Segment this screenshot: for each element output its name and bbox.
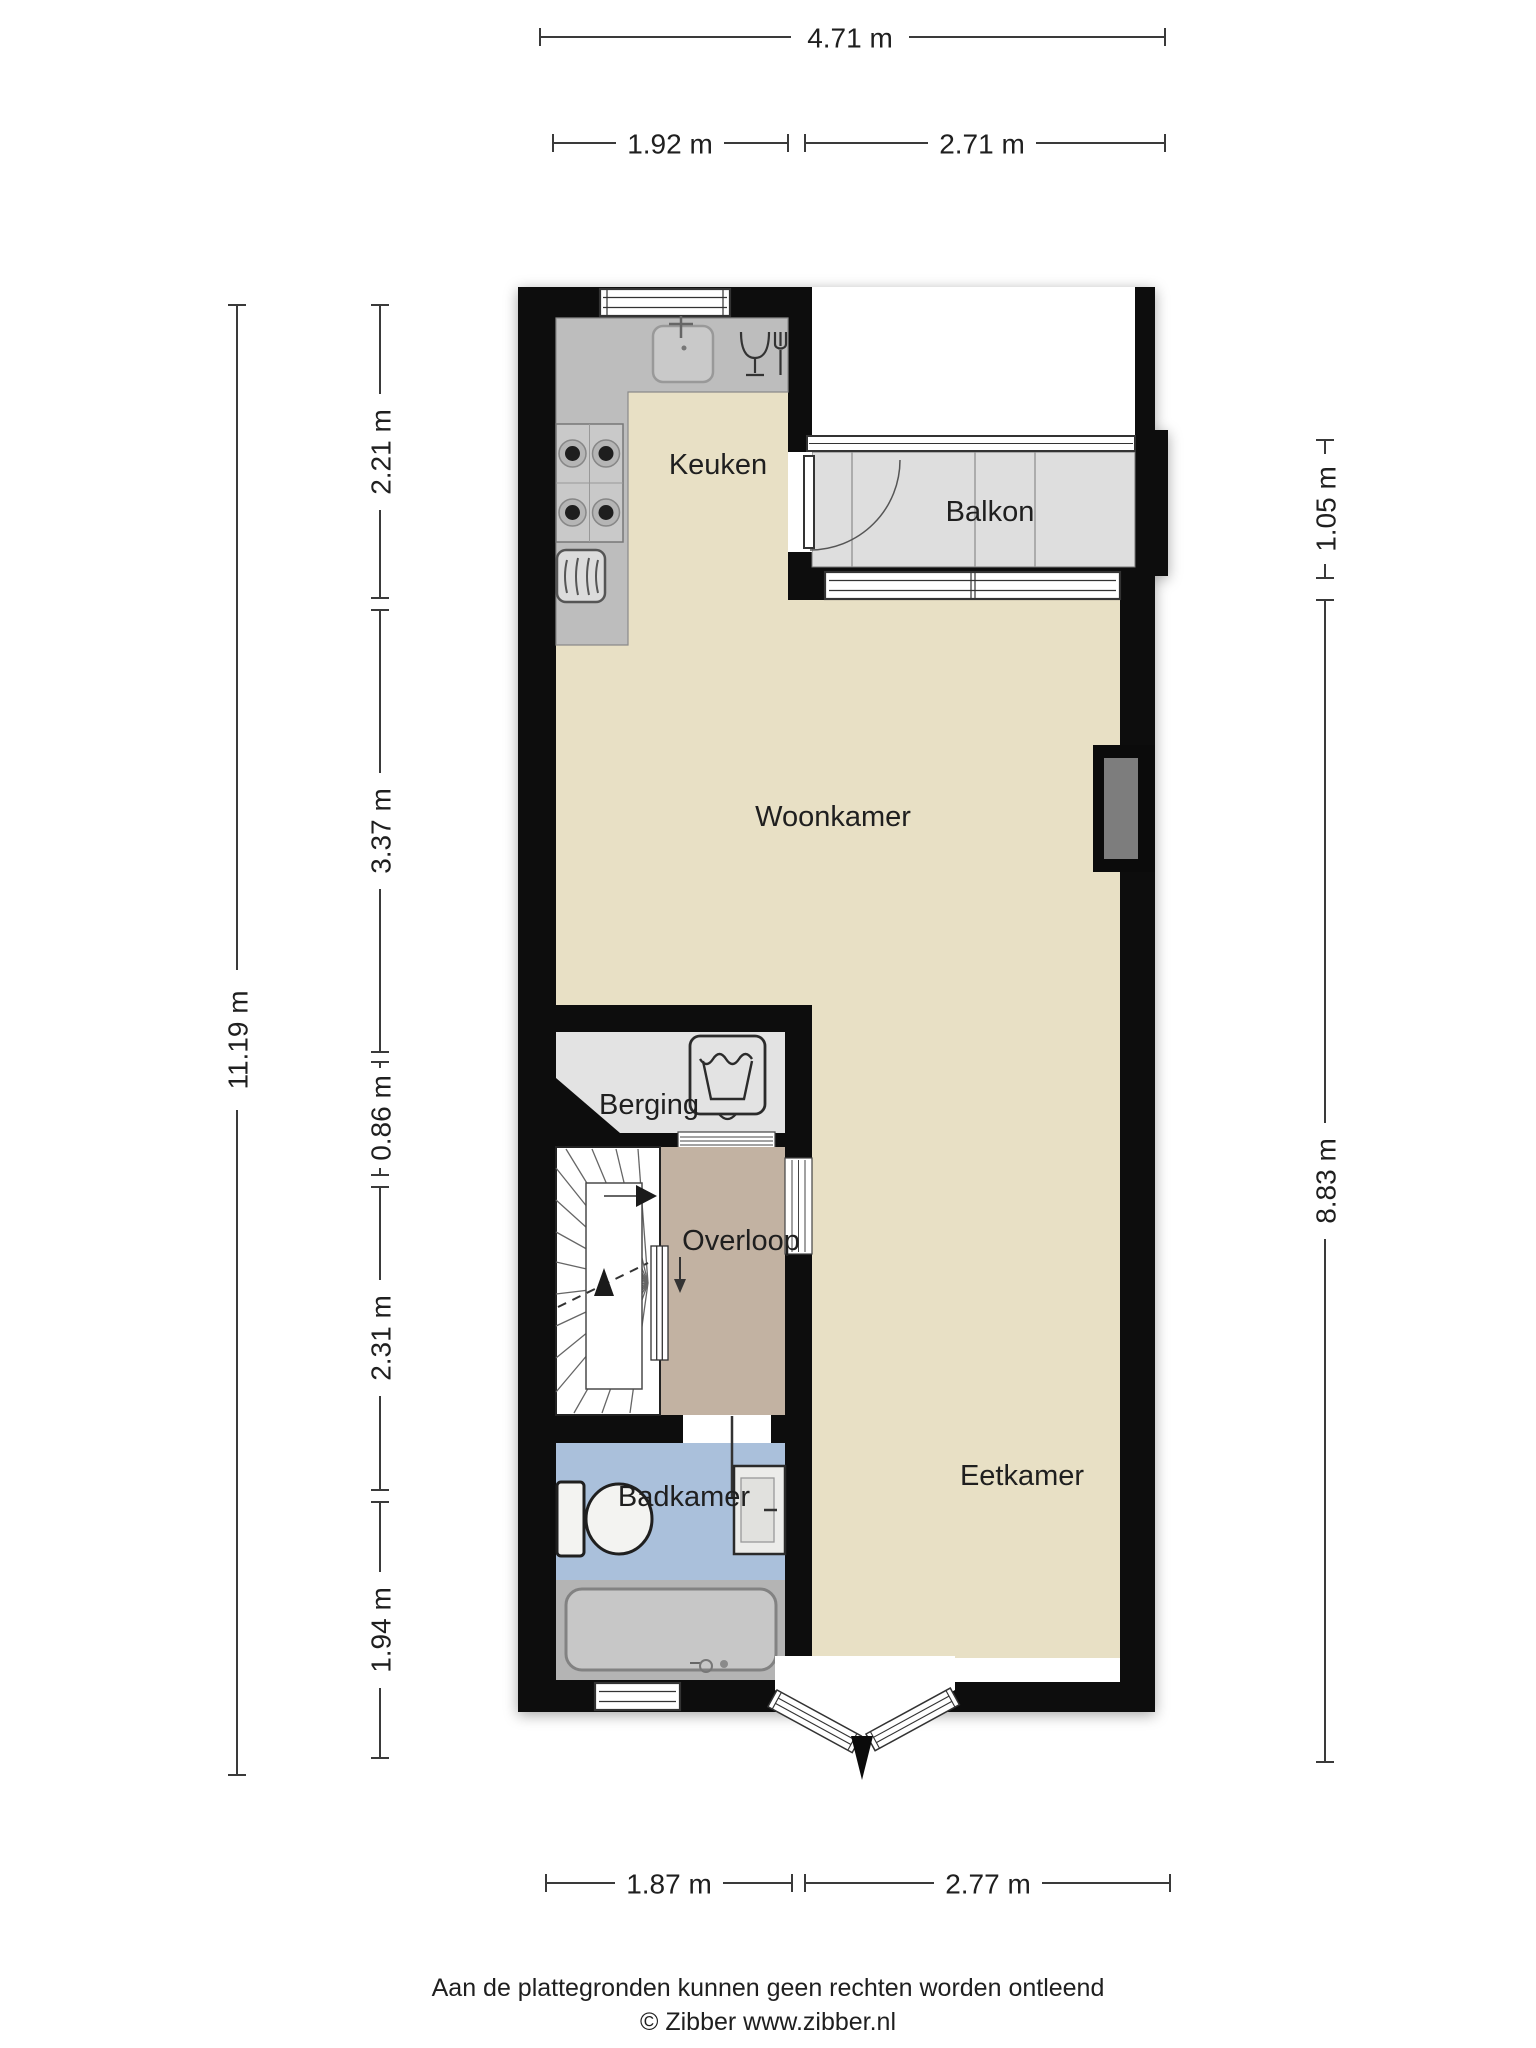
svg-text:1.92 m: 1.92 m bbox=[627, 129, 713, 160]
room-label-balkon: Balkon bbox=[946, 496, 1035, 528]
svg-text:1.05 m: 1.05 m bbox=[1311, 466, 1342, 552]
room-label-eetkamer: Eetkamer bbox=[960, 1460, 1084, 1492]
floor-plan: Keuken Balkon Woonkamer Berging Overloop… bbox=[0, 0, 1536, 2048]
bathroom-window bbox=[595, 1683, 680, 1710]
room-label-overloop: Overloop bbox=[682, 1225, 800, 1257]
footer-credit: © Zibber www.zibber.nl bbox=[640, 2008, 896, 2036]
svg-text:8.83 m: 8.83 m bbox=[1311, 1138, 1342, 1224]
staircase bbox=[556, 1147, 668, 1415]
stair-stringer bbox=[586, 1183, 642, 1389]
dimension-top-left: 1.92 m bbox=[553, 127, 788, 160]
footer-disclaimer: Aan de plattegronden kunnen geen rechten… bbox=[432, 1974, 1105, 2002]
dimension-left-4: 2.31 m bbox=[364, 1187, 397, 1490]
stair-balustrade bbox=[651, 1246, 668, 1360]
room-label-badkamer: Badkamer bbox=[618, 1481, 751, 1513]
bay-window bbox=[768, 1656, 959, 1780]
svg-text:1.94 m: 1.94 m bbox=[366, 1587, 397, 1673]
svg-text:2.71 m: 2.71 m bbox=[939, 129, 1025, 160]
dimension-left-total: 11.19 m bbox=[221, 305, 254, 1775]
svg-text:2.77 m: 2.77 m bbox=[945, 1869, 1031, 1900]
living-room-window bbox=[825, 572, 1120, 599]
oven-icon bbox=[557, 550, 605, 602]
dimension-bottom-1: 1.87 m bbox=[546, 1867, 792, 1900]
svg-text:1.87 m: 1.87 m bbox=[626, 1869, 712, 1900]
sink-icon bbox=[653, 316, 713, 382]
kitchen-window bbox=[600, 289, 730, 316]
bay-apex bbox=[851, 1736, 873, 1780]
svg-text:2.31 m: 2.31 m bbox=[366, 1295, 397, 1381]
dimension-left-2: 3.37 m bbox=[364, 610, 397, 1052]
svg-text:11.19 m: 11.19 m bbox=[223, 990, 254, 1089]
exterior-cutout bbox=[812, 287, 1135, 436]
dimension-left-1: 2.21 m bbox=[364, 305, 397, 598]
svg-text:2.21 m: 2.21 m bbox=[366, 409, 397, 495]
dimension-left-5: 1.94 m bbox=[364, 1502, 397, 1758]
svg-text:4.71 m: 4.71 m bbox=[807, 23, 893, 54]
balcony-railing bbox=[807, 436, 1135, 451]
dimension-top-right: 2.71 m bbox=[805, 127, 1165, 160]
svg-text:0.86 m: 0.86 m bbox=[366, 1075, 397, 1161]
dimension-top-total: 4.71 m bbox=[540, 21, 1165, 54]
dimension-bottom-2: 2.77 m bbox=[805, 1867, 1170, 1900]
floor-plan-page: Keuken Balkon Woonkamer Berging Overloop… bbox=[0, 0, 1536, 2048]
room-label-berging: Berging bbox=[599, 1089, 699, 1121]
svg-text:3.37 m: 3.37 m bbox=[366, 788, 397, 874]
dimension-right-2: 8.83 m bbox=[1309, 600, 1342, 1762]
dimension-right-1: 1.05 m bbox=[1309, 440, 1342, 578]
room-label-woonkamer: Woonkamer bbox=[755, 801, 911, 833]
bathtub-icon bbox=[566, 1589, 776, 1672]
room-label-keuken: Keuken bbox=[669, 449, 767, 481]
stove-icon bbox=[556, 424, 623, 542]
dimension-left-3: 0.86 m bbox=[364, 1062, 397, 1175]
chimney bbox=[1093, 745, 1155, 872]
